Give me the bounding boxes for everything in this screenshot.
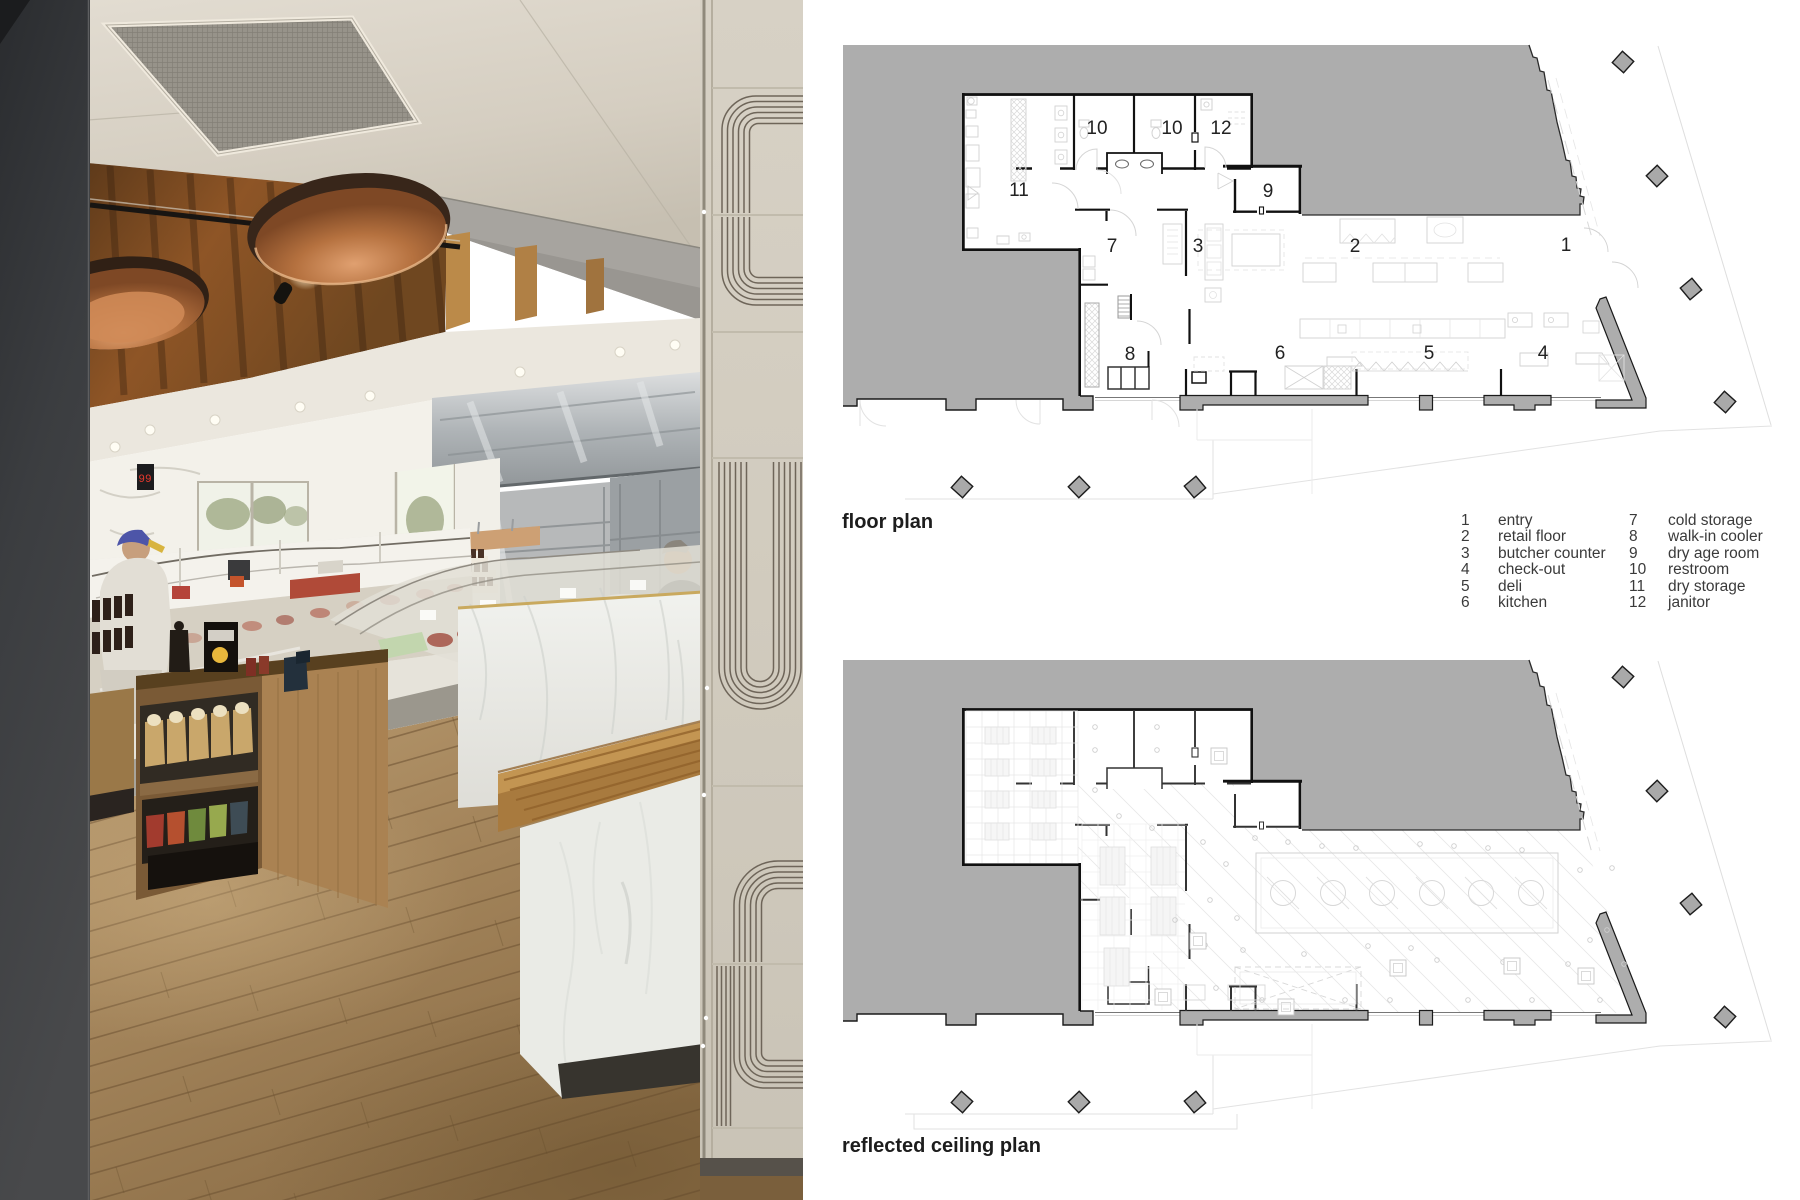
svg-text:7: 7	[1107, 236, 1118, 257]
svg-text:10: 10	[1161, 118, 1182, 139]
svg-text:3: 3	[1193, 236, 1204, 257]
svg-text:8: 8	[1125, 344, 1136, 365]
svg-text:5: 5	[1424, 343, 1435, 364]
svg-text:6: 6	[1275, 343, 1286, 364]
svg-text:10: 10	[1086, 118, 1107, 139]
svg-text:4: 4	[1538, 343, 1549, 364]
svg-text:12: 12	[1210, 118, 1231, 139]
svg-text:11: 11	[1009, 180, 1029, 201]
svg-text:9: 9	[1263, 181, 1274, 202]
svg-text:2: 2	[1350, 236, 1361, 257]
svg-text:1: 1	[1561, 235, 1572, 256]
